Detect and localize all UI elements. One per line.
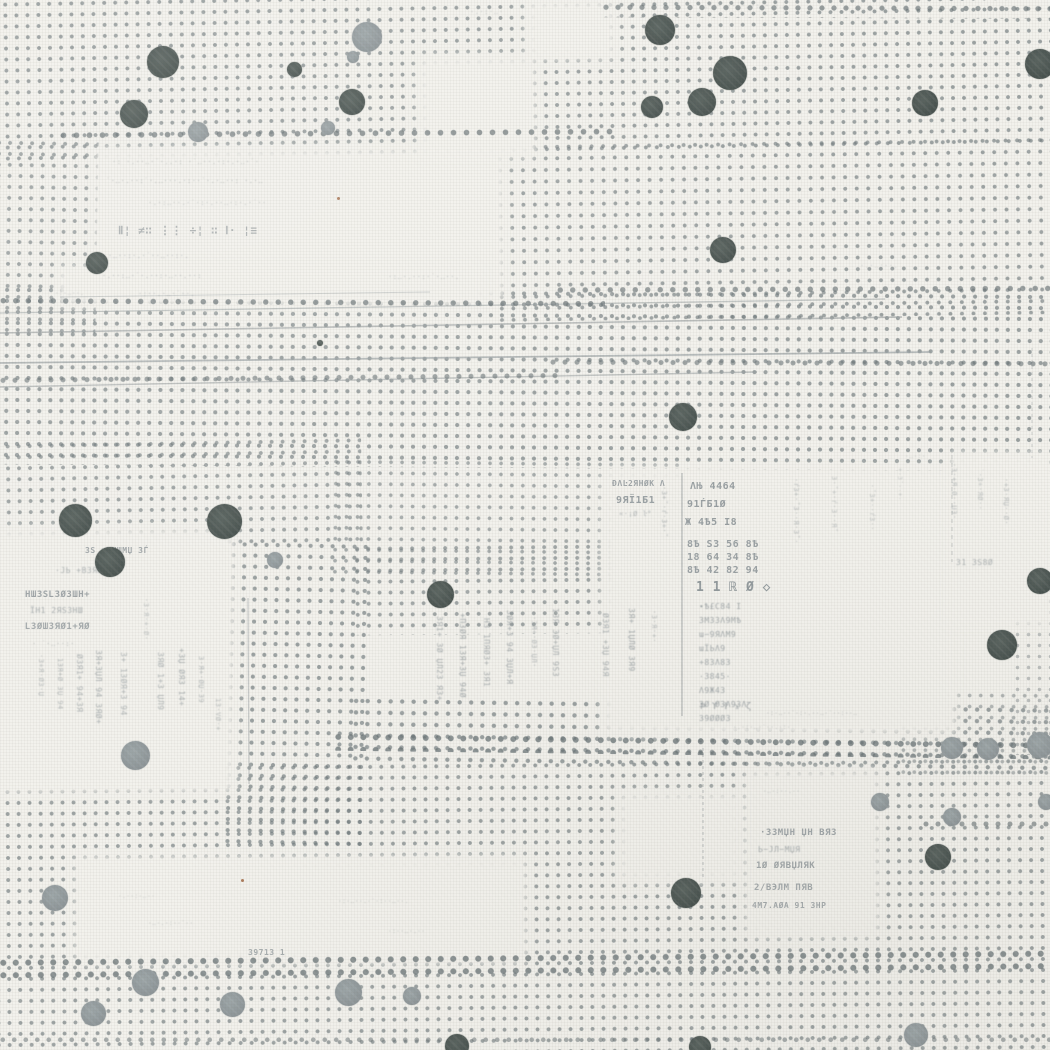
rust-speck (241, 879, 244, 882)
print-dot-gray (188, 122, 208, 142)
print-dot-gray (1038, 794, 1050, 810)
text-fragment: ·.·:‥··.·˙·:·.··‥·:·.·˙·· (148, 199, 267, 207)
print-line (248, 598, 249, 784)
text-fragment: ĐΛĿ2ЯНØК Λ (612, 479, 665, 488)
text-fragment: ·‥·:··.·· (763, 788, 800, 795)
heavy-dot-row (552, 280, 1050, 296)
print-dot-dark (287, 62, 302, 77)
text-fragment: ·З·Я·+·Ø· (142, 598, 150, 640)
fabric-swatch: ·: ·.··‥·˙·..·: ·˙‥··.·:·.·‥·˙·˙·‥·.··:˙… (0, 0, 1050, 1050)
print-dot-gray (347, 51, 359, 63)
print-dot-dark (713, 56, 747, 90)
text-fragment: +ПЗØЯ 1ЗЯ+ЗЏ 94Ø (458, 613, 467, 698)
text-fragment: З1 ЗЅ8Ø (956, 558, 993, 567)
heavy-dot-row (545, 354, 1050, 369)
text-fragment: ЗЯ1+ ЗØ ЏЛ2З ЯЗ+ (435, 616, 444, 701)
text-fragment: ·ŕЗ+·˚З··Я·З˚· (792, 478, 800, 544)
text-fragment: Ϸ ϒ Ϯ ϫ ζ (700, 701, 752, 712)
text-fragment: ·‥·:·.··˙·‥·:··.·‥ (698, 2, 784, 10)
text-fragment: «·¡Ø ŀ° (619, 510, 652, 518)
print-dot-gray (977, 738, 999, 760)
print-dot-dark (669, 403, 697, 431)
text-fragment: ·:··.·‥·˙··. (138, 290, 195, 298)
text-fragment: З+ 1ЗØЯ+З 94 (119, 652, 128, 716)
text-fragment: ЗЯØ 1+З ЏЛ9 (156, 652, 165, 710)
print-dot-dark (912, 90, 938, 116)
print-dot-gray (121, 741, 150, 770)
text-fragment: ·З+Я·ØЗ·Џ (37, 654, 45, 696)
print-dot-dark (641, 96, 663, 118)
text-fragment: · ˙·‥··:· (32, 640, 75, 648)
text-fragment: ·.·‥:··. (860, 262, 898, 270)
print-dot-dark (317, 340, 323, 346)
text-fragment: ØЗЯ1 +ЗЏ 94Я (601, 613, 610, 677)
print-dot-gray (943, 808, 961, 826)
print-dot-dark (59, 504, 92, 537)
print-dot-gray (132, 969, 159, 996)
print-dot-dark (427, 581, 454, 608)
text-fragment: З·˚+·ŕ·З··Я˚ (830, 476, 838, 533)
text-fragment: ЗØЯ+З 94 ЗЏЛ+Я (505, 610, 514, 684)
print-dot-dark (147, 46, 179, 78)
text-fragment: 9ЯЇ1Б1 (616, 495, 655, 506)
print-dot-dark (95, 547, 125, 577)
print-dot-gray (403, 987, 421, 1005)
text-fragment: ·:‥·.··:·˙·‥··. (388, 273, 460, 281)
print-dot-gray (871, 793, 889, 811)
print-dot-dark (710, 237, 736, 263)
text-fragment: 8Ѣ ЅЗ 56 8Ѣ 18 64 З4 8Ѣ 8Ѣ 42 82 94 (687, 538, 759, 577)
text-fragment: ЗЯ+ 1ЏЛØ ЗЯ9 (627, 608, 636, 672)
text-fragment: 2/ВЭЛМ ПЯВ (754, 883, 813, 893)
print-dot-dark (86, 252, 108, 274)
text-fragment: З·Я+·ØЏ·З9 (197, 656, 205, 703)
text-fragment: ·‥··:·.·˙··‥··:·. (108, 252, 189, 260)
text-fragment: ·˚З+··ŕЗ·· (868, 484, 876, 531)
print-dot-dark (120, 100, 148, 128)
text-fragment: ЗЯ+ЗЏЛ 94 ЗЯØ+ (94, 650, 103, 724)
heavy-dot-row (918, 816, 1050, 828)
text-fragment: ·З+˚·ŕ·З+·˚ (660, 486, 668, 538)
print-dot-dark (1027, 568, 1050, 594)
text-fragment: Ⅱ¦ ≠∷ ⋮⋮ ÷¦ ∷ Ⅰ· ¦≡ (118, 224, 258, 237)
print-dot-gray (352, 22, 382, 52)
text-fragment: ·.·:·‥·˙··.·:· (733, 724, 791, 731)
print-dot-gray (267, 552, 283, 568)
text-fragment: ΛЊ 4464 (690, 481, 736, 492)
text-fragment: ·ЗЗМЏН ЏН ВЯЗ (760, 828, 837, 838)
print-dot-gray (42, 885, 68, 911)
text-fragment: 1ЗЯ+Ø ЗЏ 94 (56, 658, 64, 710)
print-dot-gray (321, 121, 335, 135)
text-fragment: ·:·‥··. (55, 290, 84, 297)
text-fragment: 1ЗЯ ЗØ+ЏЛ 9ЅЗ (551, 608, 560, 677)
text-fragment: ˙·‥·.··:˙·.‥···.·:··˙·.·‥··: ·.·‥ (106, 177, 263, 185)
print-dot-gray (335, 979, 362, 1006)
text-fragment: 91ЃБ1Ø (687, 499, 726, 510)
print-dot-dark (645, 15, 675, 45)
print-dot-dark (1025, 49, 1050, 79)
rust-speck (337, 197, 340, 200)
text-fragment: Ь−ЈЛ−МЏЯ (758, 845, 801, 854)
text-fragment: 4М7.АØА 91 ЗНР (752, 901, 826, 910)
text-fragment: ԼЗØШЗЯØ1+ЯØ (25, 622, 90, 632)
text-fragment: ·.··:‥·˙·.··:·‥··.··: (102, 272, 202, 280)
text-fragment: ·.·:·‥· (470, 8, 503, 16)
text-fragment: НШЗЅԼЗØЗШН+ (25, 590, 90, 600)
text-fragment: ·:·‥··˙·:·.··‥·˙··:··‥ (766, 710, 858, 717)
text-fragment: ·‥·.·:··˙·· (148, 920, 194, 927)
text-fragment: ·‥·:· (905, 453, 926, 460)
text-fragment: +ЗЏ ØЯЗ 14+ (177, 648, 186, 706)
print-dot-dark (925, 844, 951, 870)
text-fragment: ·:·‥··.·˙·:··‥··. (338, 898, 409, 905)
text-fragment: ØЗЯ1+ 94+ЗЯ (75, 654, 84, 712)
print-dot-gray (941, 737, 963, 759)
text-fragment: НЗ 1ПЯØЗ+ ЗЯ1 (482, 618, 491, 687)
text-fragment: 1Ø ØЯВЏЛЯК (756, 861, 815, 871)
print-dot-dark (207, 504, 242, 539)
text-fragment: ·З·+Я·Ø··ЏЗ· (950, 463, 958, 520)
heavy-dot-row (0, 1032, 1050, 1048)
print-dot-dark (339, 89, 365, 115)
print-dot-gray (1027, 732, 1050, 758)
print-line (0, 317, 902, 333)
text-fragment: 1З·VØ·+ (214, 698, 222, 731)
text-fragment: ·+З·ЯЏ··Ø· (1002, 478, 1010, 525)
text-fragment: ·З·Я·+· (650, 610, 658, 643)
text-fragment: ·:··‥·.·· (388, 928, 425, 935)
text-fragment: 1 1 ℝ Ø ◇ (696, 580, 771, 595)
text-fragment: ·: ·.··‥·˙·..·: ·˙‥··.·:·.·‥·˙· (112, 158, 260, 166)
text-fragment: Ж 4Ѣ5 І8 (685, 517, 737, 528)
text-fragment: З971З 1 (248, 948, 285, 957)
print-dot-gray (220, 992, 245, 1017)
print-dot-dark (671, 878, 701, 908)
text-fragment: ЇН1 2ЯЅЗНШ (30, 606, 83, 615)
text-fragment: ·ЗЯ+·ØЗ·ЏЛ· (530, 616, 538, 668)
text-fragment: +·З˚··+· (896, 468, 903, 501)
text-fragment: ·.··:·‥·· (118, 893, 155, 900)
text-fragment: ˙·З+·ЯØ·· (976, 468, 984, 510)
print-dot-dark (987, 630, 1017, 660)
print-dot-gray (81, 1001, 106, 1026)
print-dot-gray (904, 1023, 928, 1047)
print-dot-dark (688, 88, 716, 116)
